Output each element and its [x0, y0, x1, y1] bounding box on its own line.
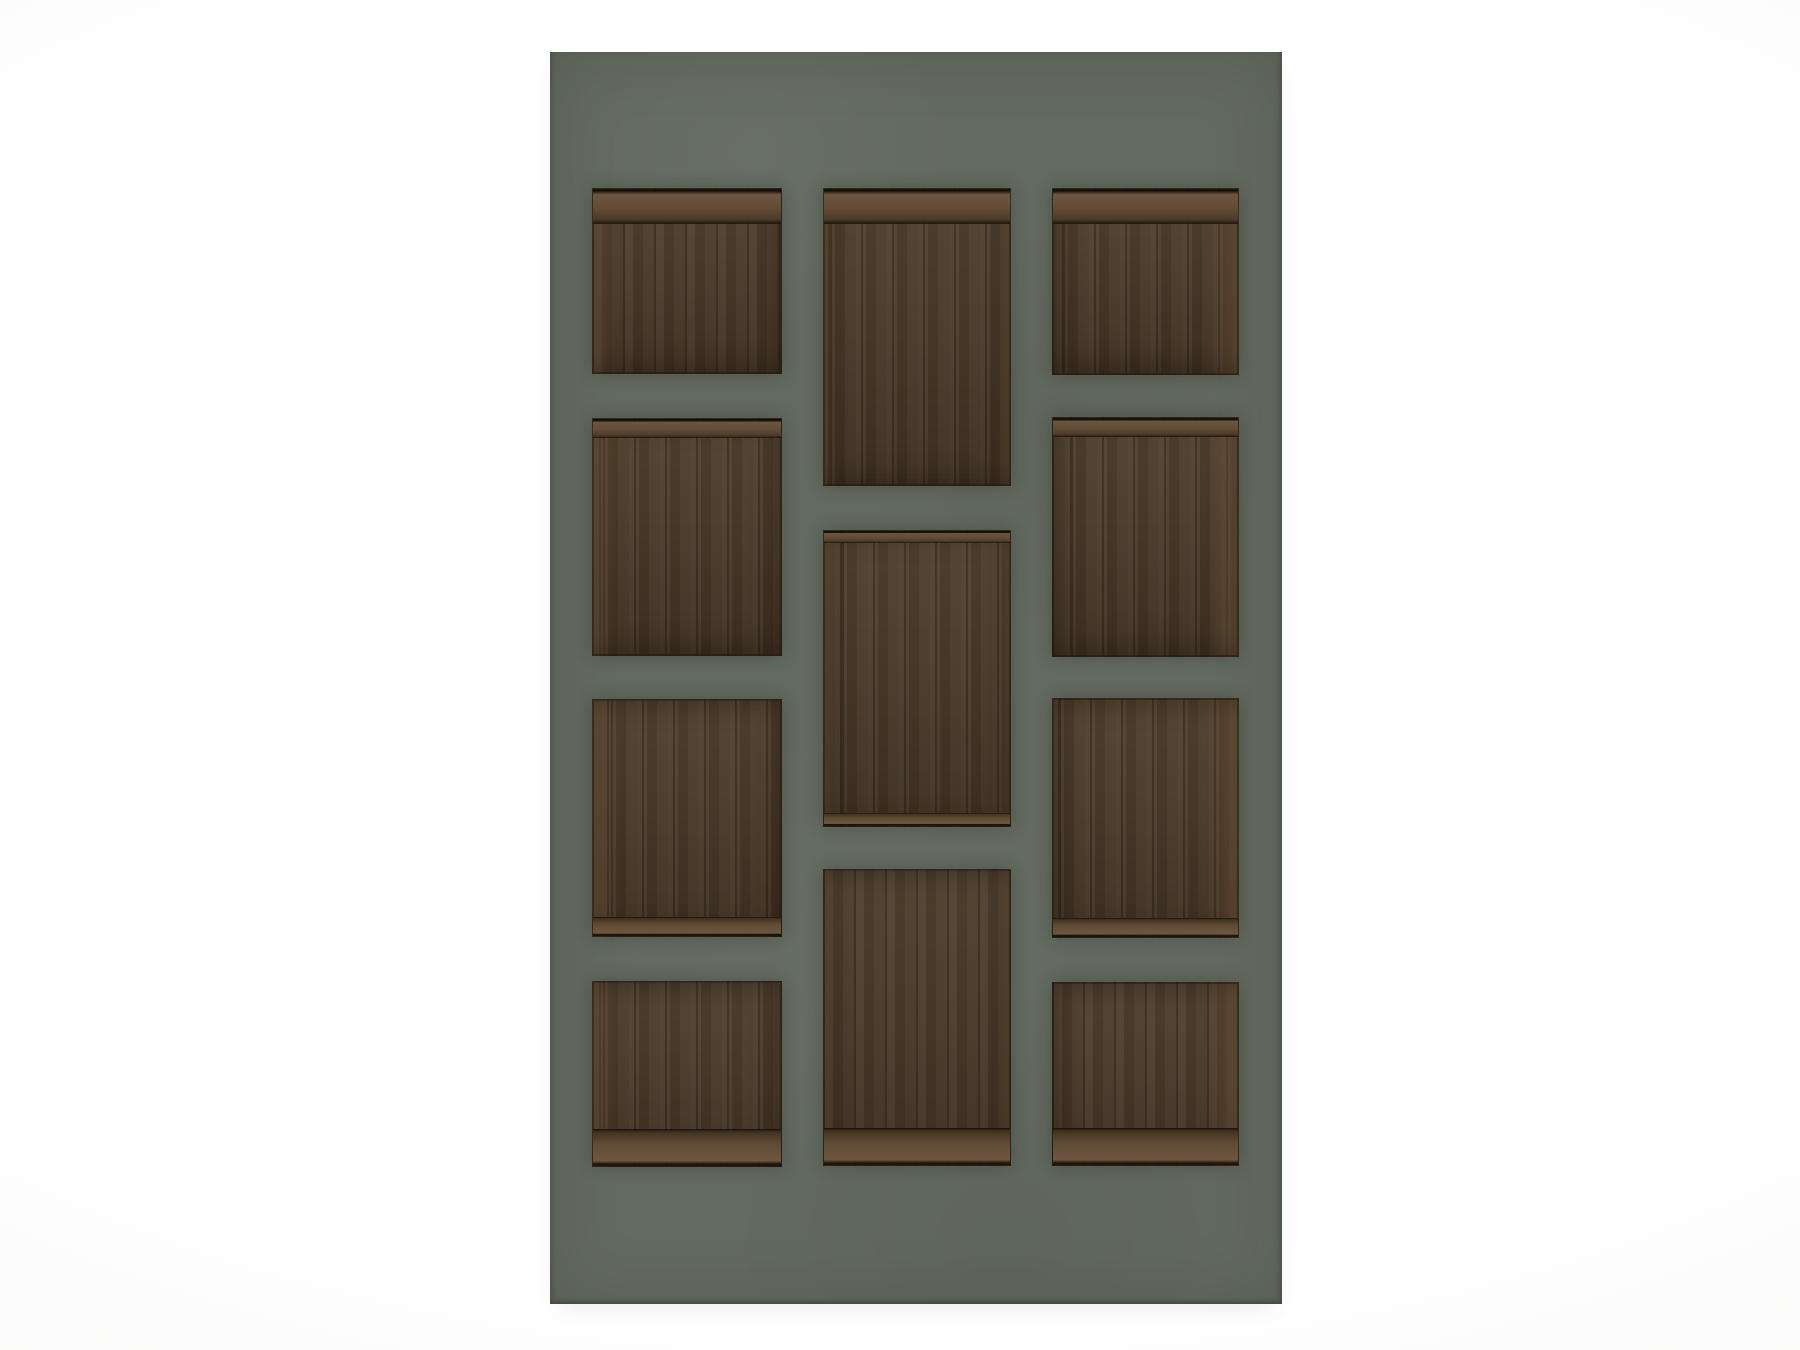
niche-right-4 [1052, 982, 1239, 1166]
niche-middle-3 [823, 869, 1011, 1166]
niche-left-1 [592, 188, 782, 374]
niche-middle-2 [823, 530, 1011, 827]
cabinet-panel [550, 52, 1282, 1304]
niche-middle-1 [823, 188, 1011, 486]
niche-left-4 [592, 981, 782, 1167]
niche-right-2 [1052, 417, 1239, 657]
niche-right-3 [1052, 698, 1239, 938]
render-canvas [0, 0, 1800, 1350]
niche-left-3 [592, 699, 782, 937]
niche-right-1 [1052, 188, 1239, 375]
niche-left-2 [592, 418, 782, 656]
